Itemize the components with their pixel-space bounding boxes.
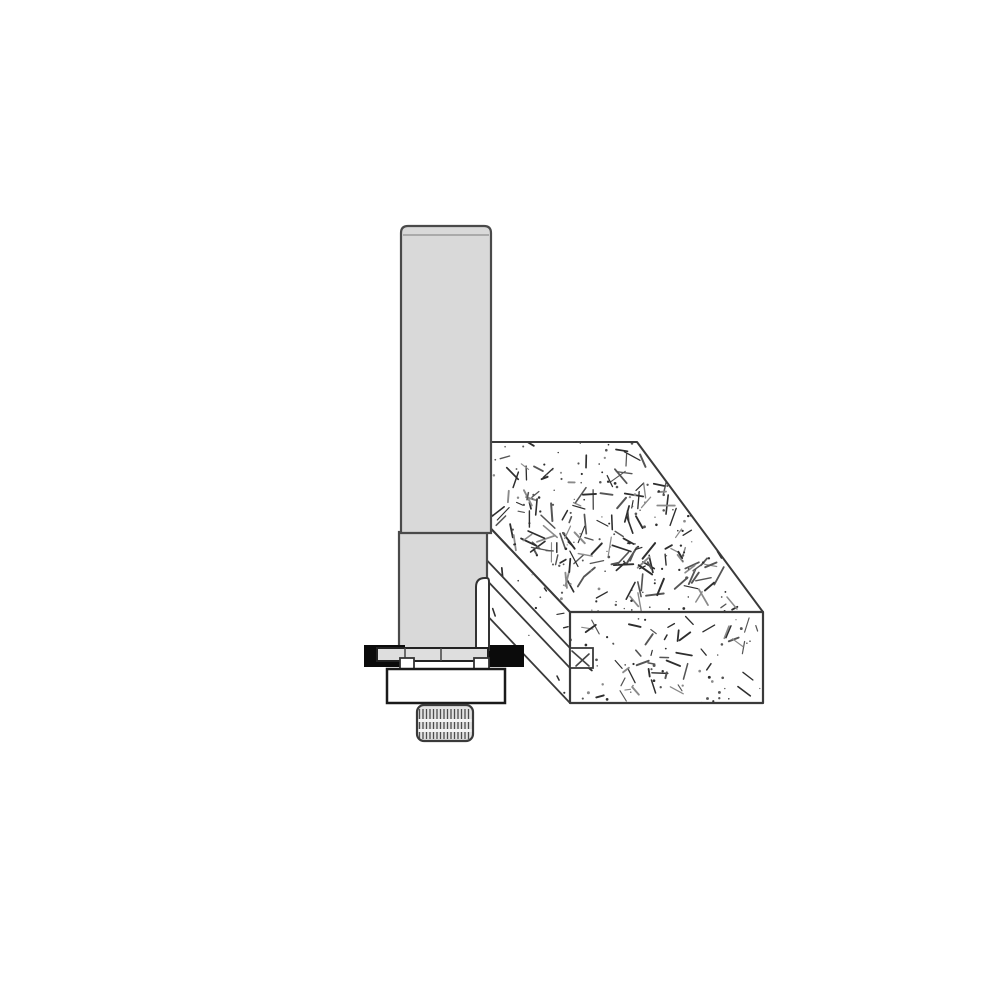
cutter-wing-upper: [476, 578, 489, 650]
bit-shank: [401, 226, 491, 533]
illustration-canvas: [0, 0, 1000, 1000]
cutter-blade-bar: [377, 648, 488, 661]
router-bit-groove-illustration: [0, 0, 1000, 1000]
nut-knurl-band: [418, 719, 472, 722]
retaining-nut: [417, 705, 473, 741]
bit-arbor: [399, 532, 487, 650]
pilot-bearing: [387, 669, 505, 703]
groove-end-notch: [570, 648, 593, 668]
nut-knurl-band: [418, 729, 472, 732]
cutter-wing-right: [488, 645, 524, 667]
